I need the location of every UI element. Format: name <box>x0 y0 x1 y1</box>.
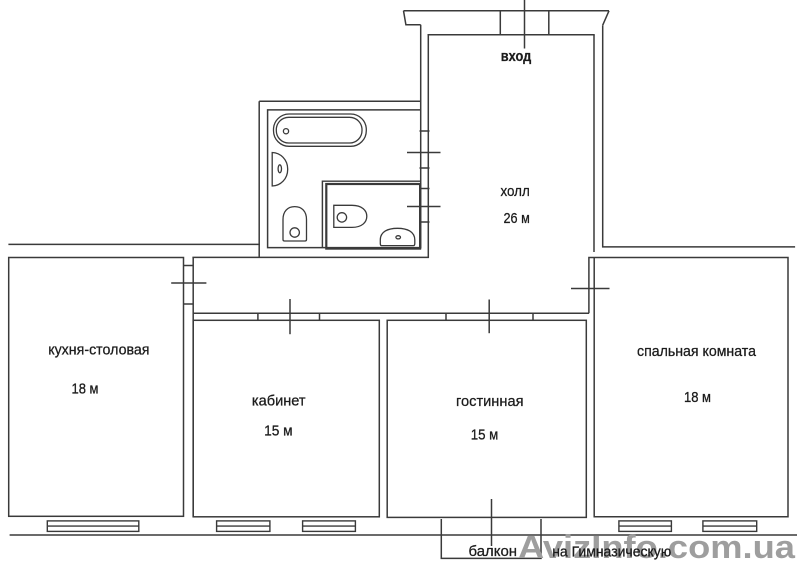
svg-text:15 м: 15 м <box>264 422 293 439</box>
svg-text:18 м: 18 м <box>684 389 711 406</box>
svg-text:вход: вход <box>501 48 532 65</box>
svg-text:кухня-столовая: кухня-столовая <box>48 342 149 359</box>
svg-text:гостинная: гостинная <box>456 393 524 410</box>
svg-text:холл: холл <box>501 183 530 200</box>
svg-text:26 м: 26 м <box>504 210 530 227</box>
svg-text:18 м: 18 м <box>72 381 99 398</box>
svg-text:кабинет: кабинет <box>252 392 306 409</box>
svg-text:15 м: 15 м <box>471 427 499 444</box>
svg-text:спальная комната: спальная комната <box>637 343 757 360</box>
svg-text:балкон: балкон <box>469 543 518 560</box>
svg-text:на Гимназическую: на Гимназическую <box>552 544 671 561</box>
